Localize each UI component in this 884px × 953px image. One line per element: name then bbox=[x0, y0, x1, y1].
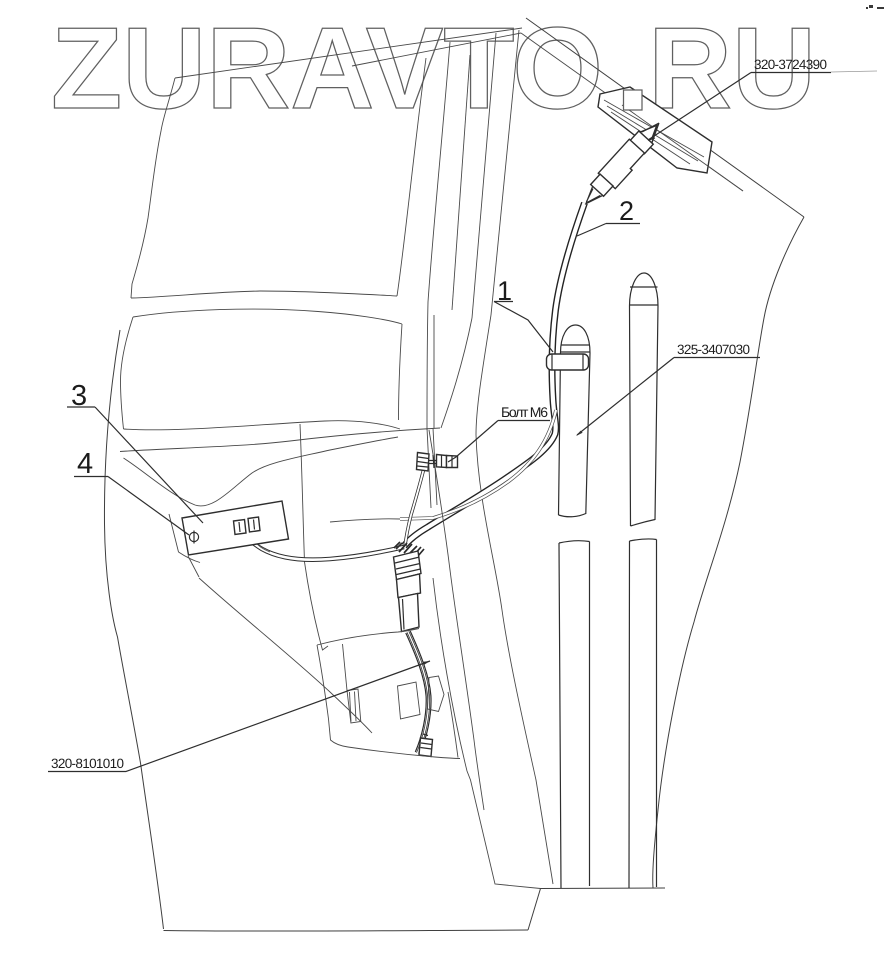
svg-text:2: 2 bbox=[619, 196, 634, 226]
svg-text:320-3724390: 320-3724390 bbox=[754, 57, 827, 72]
svg-text:ZURAVTO: ZURAVTO bbox=[51, 3, 603, 133]
svg-text:325-3407030: 325-3407030 bbox=[677, 342, 750, 357]
svg-text:Болт М6: Болт М6 bbox=[501, 404, 548, 420]
svg-text:4: 4 bbox=[77, 448, 93, 480]
svg-text:320-8101010: 320-8101010 bbox=[51, 756, 124, 771]
